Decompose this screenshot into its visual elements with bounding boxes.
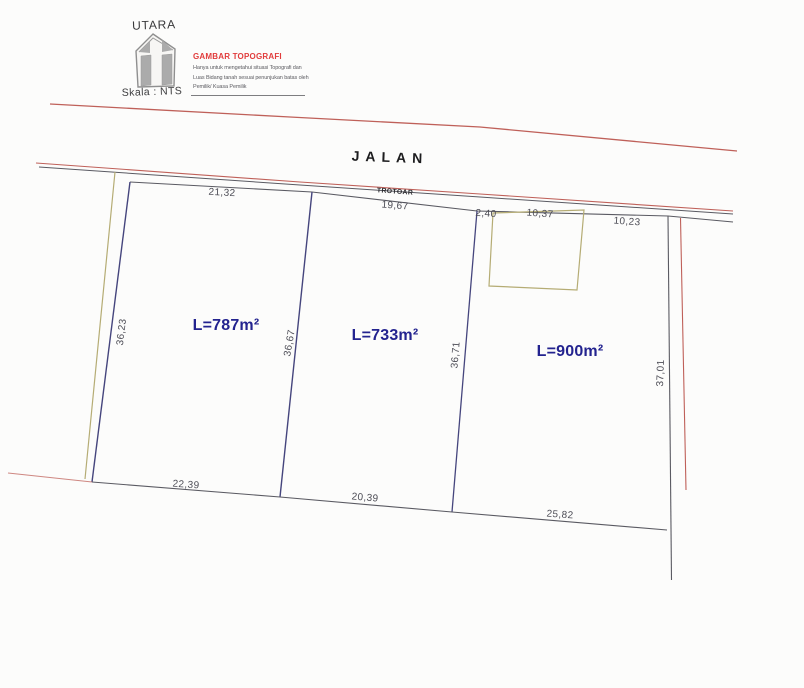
measurement-parcel3-front-b: 10,37 bbox=[526, 208, 554, 221]
drawing-title: GAMBAR TOPOGRAFI bbox=[193, 52, 321, 61]
north-arrow-icon bbox=[136, 34, 175, 87]
parcel3-right-boundary bbox=[668, 216, 672, 580]
north-arrow-left-bar bbox=[141, 55, 151, 86]
road-top-edge-line bbox=[50, 104, 737, 151]
note-line-2: Luas Bidang tanah sesuai penunjukan bata… bbox=[193, 74, 321, 84]
building-outline bbox=[489, 210, 584, 290]
measurement-parcel2-back: 20,39 bbox=[351, 491, 379, 504]
topographic-survey-sheet: UTARA Skala : NTS GAMBAR TOPOGRAFI Hanya… bbox=[0, 0, 804, 688]
parcel-2-area-label: L=733m² bbox=[352, 327, 419, 345]
road-name-label: JALAN bbox=[351, 148, 428, 167]
parcel-1-area-label: L=787m² bbox=[193, 317, 260, 335]
measurement-parcel2-front: 19,67 bbox=[381, 200, 409, 213]
left-survey-olive-line bbox=[85, 172, 115, 479]
north-label: UTARA bbox=[132, 17, 176, 33]
measurement-parcel1-front: 21,32 bbox=[208, 187, 236, 199]
measurement-parcel2-right-side: 36,71 bbox=[449, 341, 462, 369]
title-block-underline bbox=[191, 95, 305, 96]
measurement-parcel3-back: 25,82 bbox=[546, 509, 574, 522]
note-line-1: Hanya untuk mengetahui situasi Topografi… bbox=[193, 64, 321, 74]
measurement-parcel3-right-side: 37,01 bbox=[655, 359, 667, 386]
measurement-parcel3-front-c: 10,23 bbox=[613, 216, 641, 229]
scale-label: Skala : NTS bbox=[122, 85, 183, 99]
right-red-boundary-line bbox=[681, 218, 687, 490]
back-boundary-red-extension bbox=[8, 473, 92, 482]
note-line-3: Pemilik/ Kuasa Pemilik bbox=[193, 83, 321, 93]
north-arrow-right-bar bbox=[162, 54, 172, 85]
parcel-3-area-label: L=900m² bbox=[537, 343, 604, 361]
title-block: GAMBAR TOPOGRAFI Hanya untuk mengetahui … bbox=[193, 52, 321, 93]
measurement-parcel3-front-a: 2,40 bbox=[475, 208, 497, 220]
measurement-parcel1-back: 22,39 bbox=[172, 479, 200, 492]
